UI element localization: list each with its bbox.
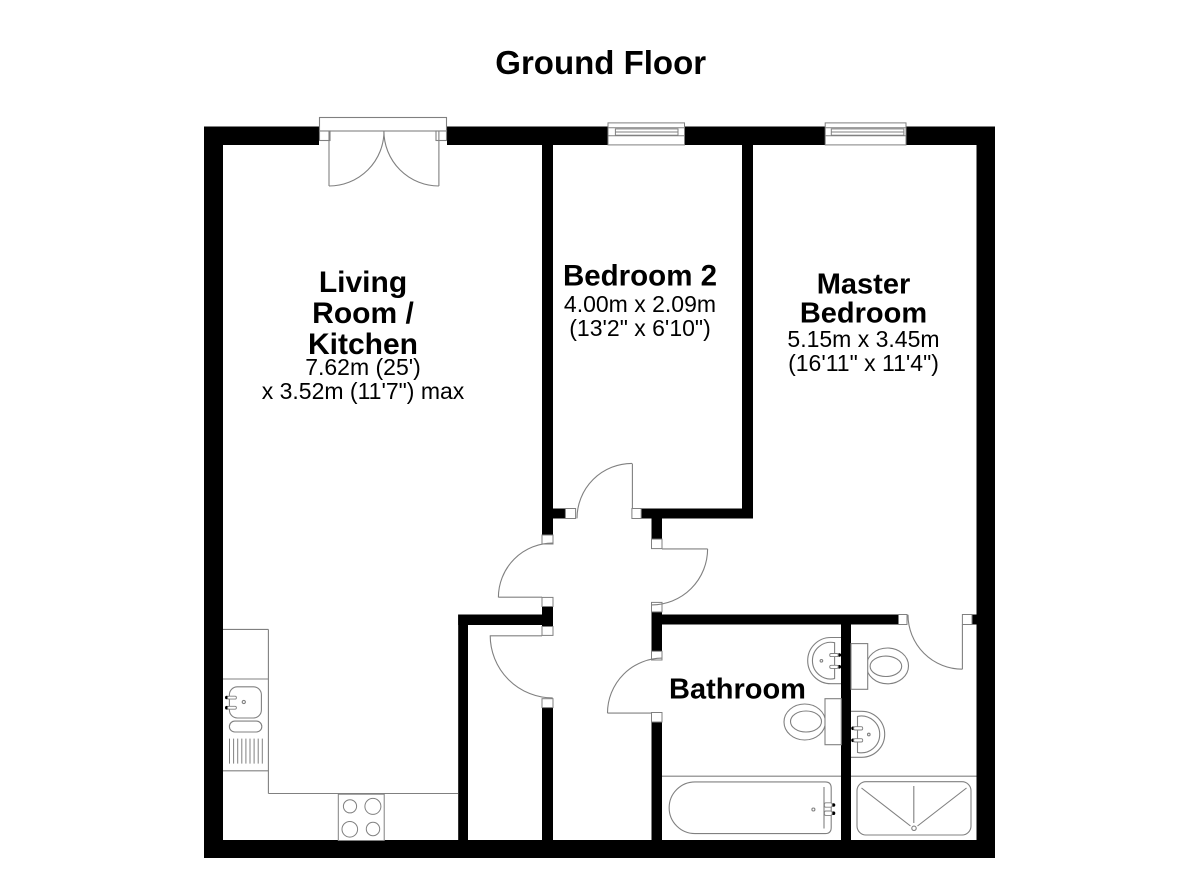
svg-text:Ground Floor: Ground Floor bbox=[495, 44, 706, 81]
svg-text:x 3.52m (11'7") max: x 3.52m (11'7") max bbox=[262, 378, 465, 404]
svg-text:(16'11" x 11'4"): (16'11" x 11'4") bbox=[788, 350, 939, 376]
svg-text:7.62m (25'): 7.62m (25') bbox=[305, 354, 421, 380]
svg-text:Room /: Room / bbox=[312, 297, 414, 330]
svg-text:Bedroom 2: Bedroom 2 bbox=[563, 260, 717, 293]
svg-text:Master: Master bbox=[817, 269, 911, 301]
svg-text:Bedroom: Bedroom bbox=[800, 298, 927, 330]
svg-text:4.00m x 2.09m: 4.00m x 2.09m bbox=[564, 291, 716, 317]
svg-text:(13'2" x 6'10"): (13'2" x 6'10") bbox=[569, 315, 710, 341]
svg-text:5.15m x 3.45m: 5.15m x 3.45m bbox=[787, 326, 939, 352]
svg-text:Bathroom: Bathroom bbox=[669, 674, 806, 706]
svg-text:Living: Living bbox=[319, 266, 407, 299]
